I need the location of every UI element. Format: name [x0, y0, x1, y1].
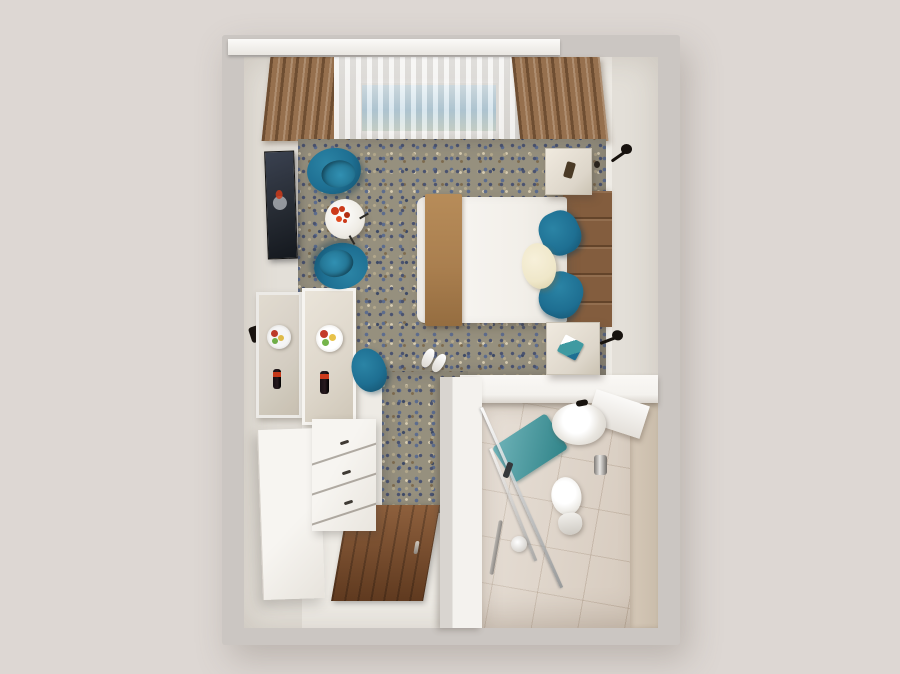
room-outer-frame — [222, 35, 680, 645]
door-handle-icon — [413, 541, 419, 554]
wall-lamp-top — [608, 143, 636, 165]
bottle-label — [320, 374, 329, 379]
drawer-seam — [312, 441, 376, 467]
drawer-knob-icon — [340, 440, 349, 446]
faucet-icon — [576, 399, 589, 407]
fruit-icon — [329, 334, 336, 341]
mirror-bottle-reflection — [273, 369, 281, 389]
fruit-icon — [278, 335, 284, 341]
wall-switch-icon — [594, 161, 600, 168]
fruit-icon — [322, 339, 329, 346]
wine-bottle — [320, 371, 329, 394]
bed-runner — [425, 194, 462, 326]
curtain-pelmet — [228, 39, 560, 55]
fruit-icon — [271, 330, 278, 337]
fruit-icon — [272, 338, 278, 344]
guest-directory — [557, 334, 584, 361]
armchair-seat — [317, 247, 355, 280]
sheer-curtain-folds — [334, 57, 524, 141]
coffee-table — [325, 199, 365, 239]
shower-handset-icon — [511, 536, 527, 552]
flower-arrangement — [331, 207, 339, 215]
wall-mirror — [256, 292, 302, 418]
bottle-label — [273, 372, 281, 377]
lamp-head-icon — [621, 144, 632, 154]
toilet-tank — [557, 511, 584, 536]
hall-bathroom-partition-wall — [440, 377, 482, 628]
toilet-paper-holder — [594, 455, 607, 475]
toilet-bowl — [549, 475, 584, 517]
nightstand-decor-icon — [563, 161, 576, 179]
drawer-chest — [312, 419, 376, 531]
armchair-seat — [320, 158, 357, 189]
nightstand-top — [545, 148, 592, 195]
console-desk — [302, 288, 356, 425]
render-canvas — [0, 0, 900, 674]
fruit-icon — [320, 330, 328, 338]
nightstand-bottom — [546, 322, 600, 375]
sheer-curtain — [334, 57, 524, 141]
drawer-knob-icon — [344, 500, 353, 506]
wall-tv — [264, 151, 298, 260]
mirror-plate-reflection — [267, 325, 291, 349]
curtain-drape-right — [512, 57, 609, 141]
sink-basin — [552, 403, 606, 445]
drawer-knob-icon — [342, 470, 351, 476]
fruit-plate — [316, 325, 343, 352]
drawer-seam — [312, 471, 376, 497]
